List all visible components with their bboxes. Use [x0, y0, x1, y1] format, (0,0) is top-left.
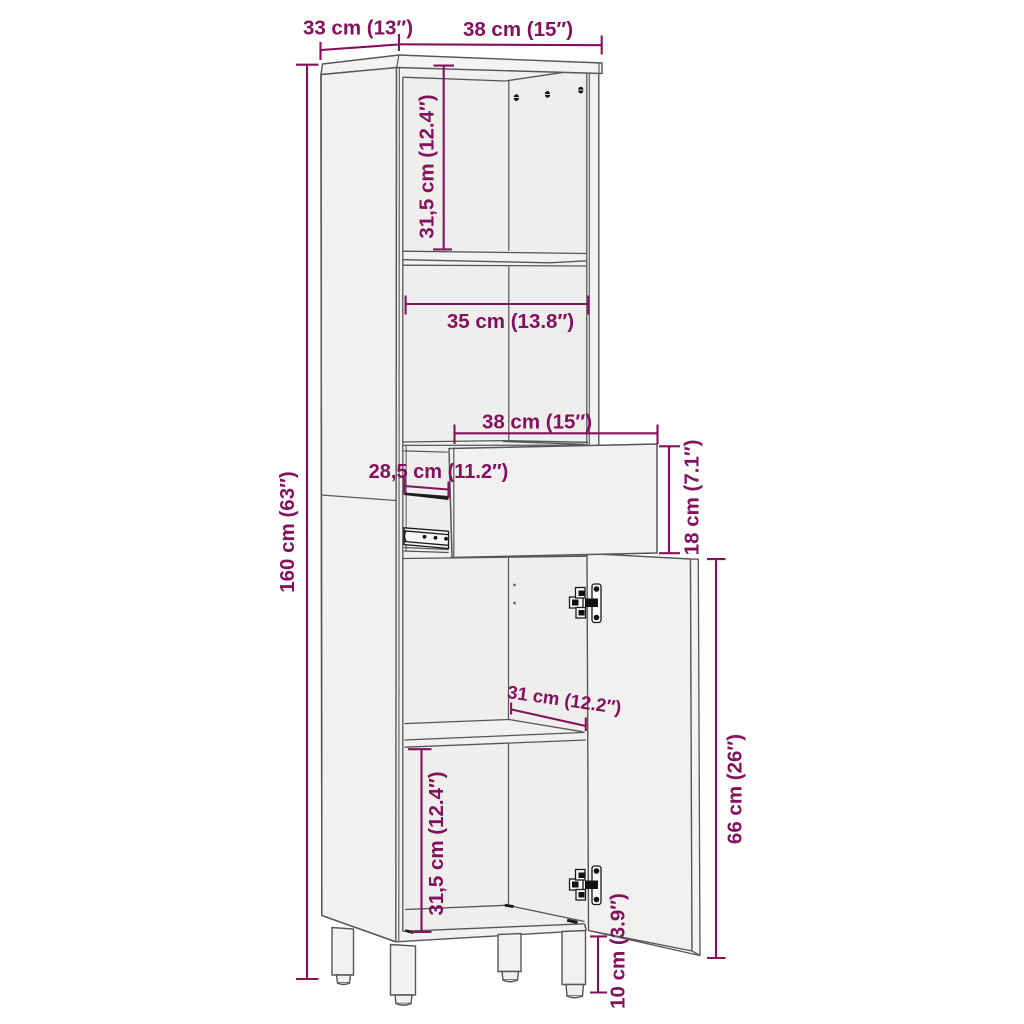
svg-text:66 cm (26″): 66 cm (26″)	[724, 734, 747, 844]
svg-text:10 cm (3.9″): 10 cm (3.9″)	[607, 893, 630, 1009]
svg-text:33 cm (13″): 33 cm (13″)	[303, 17, 413, 40]
svg-text:31,5 cm (12.4″): 31,5 cm (12.4″)	[425, 771, 448, 915]
svg-text:38 cm (15″): 38 cm (15″)	[482, 411, 592, 434]
svg-text:38 cm (15″): 38 cm (15″)	[463, 18, 573, 41]
svg-text:18 cm (7.1″): 18 cm (7.1″)	[681, 440, 704, 556]
svg-text:160 cm (63″): 160 cm (63″)	[276, 471, 299, 593]
svg-text:35 cm (13.8″): 35 cm (13.8″)	[447, 310, 574, 333]
svg-text:28,5 cm (11.2″): 28,5 cm (11.2″)	[369, 461, 509, 483]
svg-text:31,5 cm (12.4″): 31,5 cm (12.4″)	[416, 94, 439, 238]
